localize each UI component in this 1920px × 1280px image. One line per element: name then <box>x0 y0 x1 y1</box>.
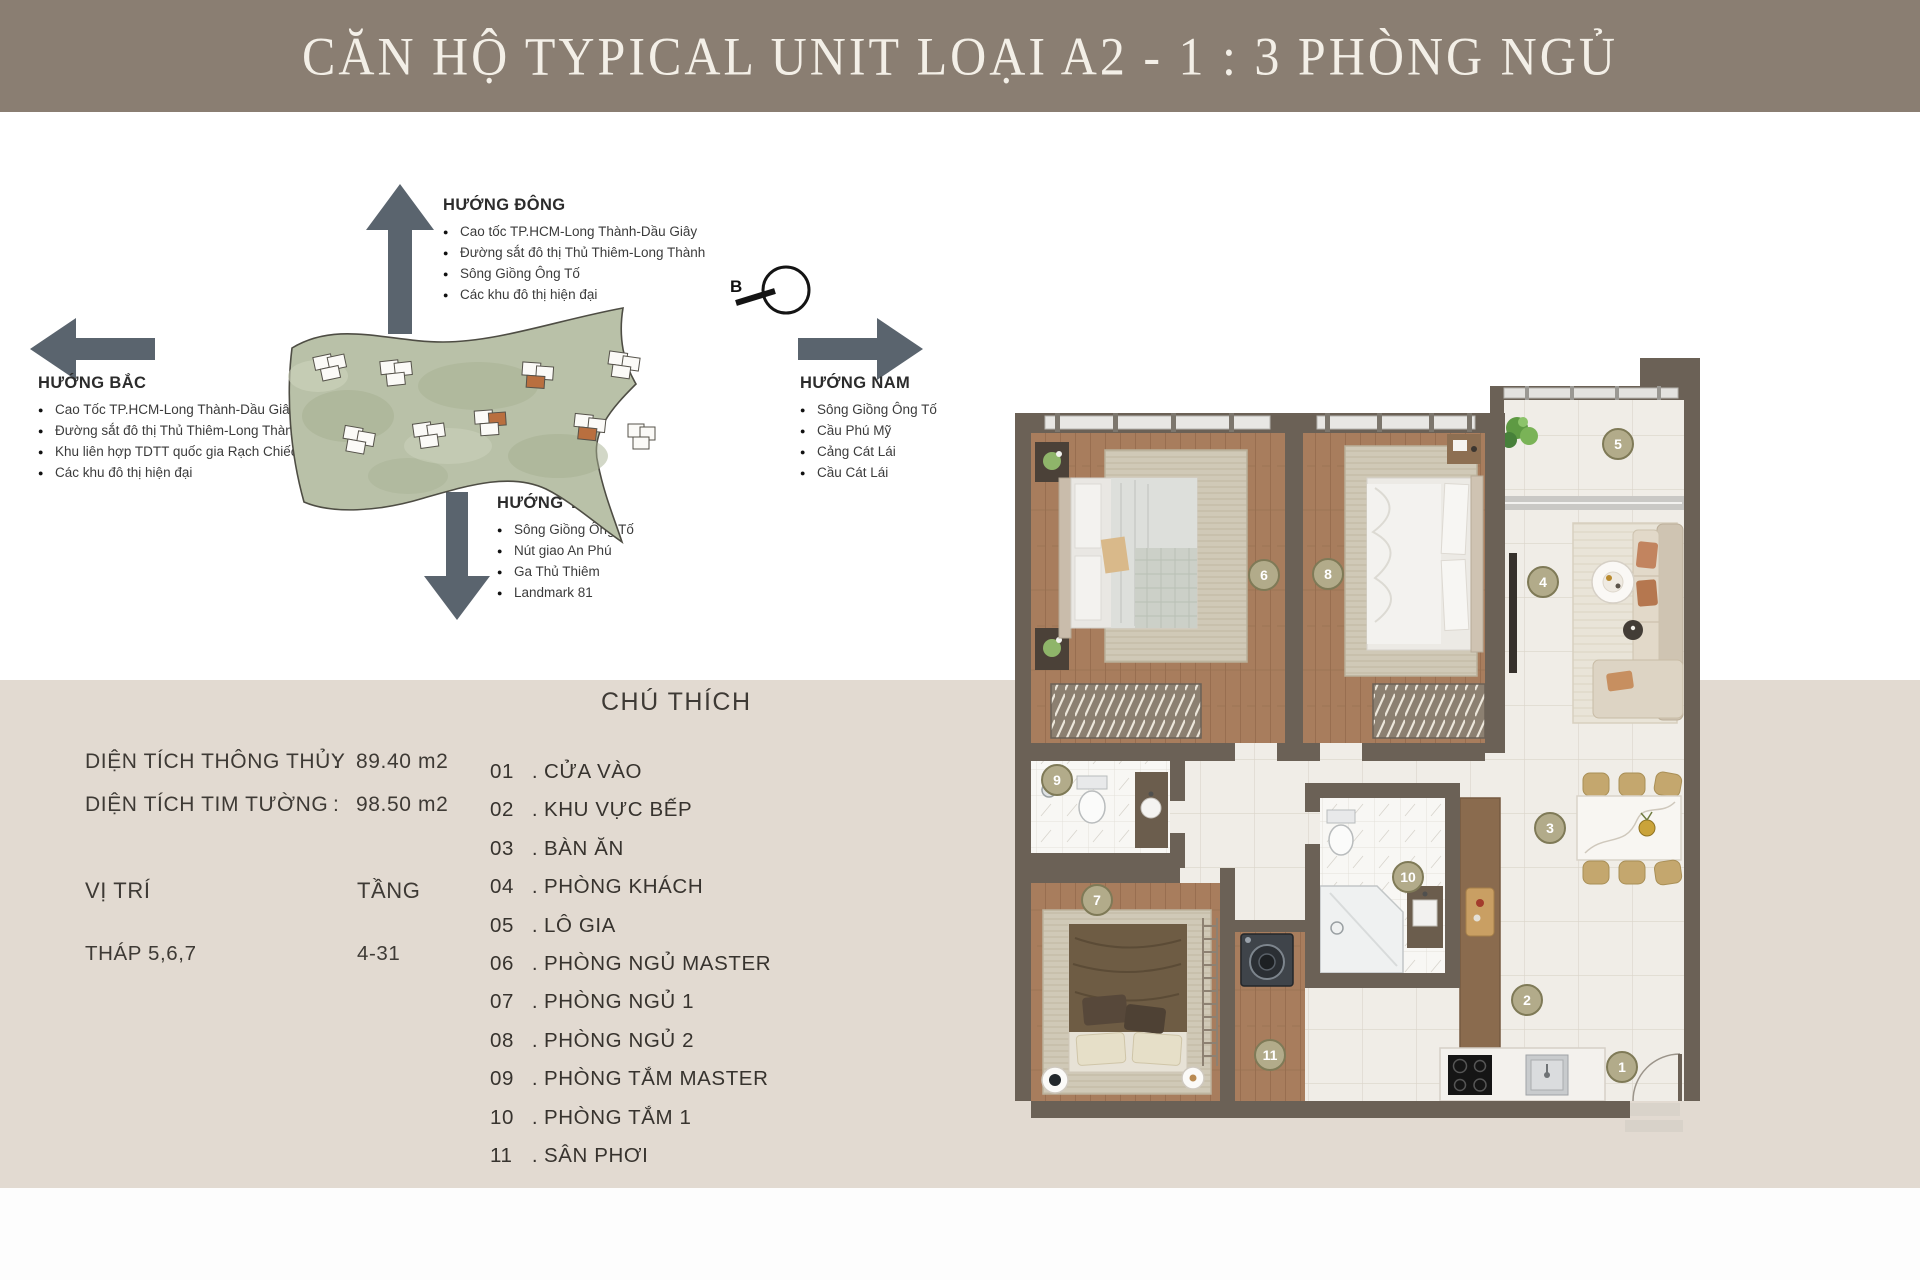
bullet-icon: ● <box>800 447 805 457</box>
position-label: VỊ TRÍ <box>85 878 151 904</box>
direction-block-south: HƯỚNG NAM ●Sông Giồng Ông Tố ●Cầu Phú Mỹ… <box>800 374 937 486</box>
room-badge-3: 3 <box>1535 813 1565 843</box>
compass-north-label: B <box>730 277 742 296</box>
floor-label: TẦNG <box>357 878 421 904</box>
colon: : <box>333 750 339 774</box>
legend-item: 02.KHU VỰC BẾP <box>490 798 771 836</box>
room-badge-1: 1 <box>1607 1052 1637 1082</box>
legend-item: 10.PHÒNG TẮM 1 <box>490 1106 771 1144</box>
legend-item: 03.BÀN ĂN <box>490 837 771 875</box>
legend-item: 11.SÂN PHƠI <box>490 1144 771 1182</box>
arrow-north-icon <box>30 318 155 380</box>
tower-footprint <box>628 424 655 449</box>
north-indicator-icon: B <box>726 250 826 332</box>
room-badge-8: 8 <box>1313 559 1343 589</box>
legend-item: 01.CỬA VÀO <box>490 760 771 798</box>
washing-machine-icon <box>1241 934 1293 986</box>
room-badge-4: 4 <box>1528 567 1558 597</box>
room-badge-9: 9 <box>1042 765 1072 795</box>
list-item: ●Sông Giồng Ông Tố <box>800 402 937 417</box>
bullet-icon: ● <box>497 588 502 598</box>
bedroom1-bed <box>1042 910 1217 1094</box>
bullet-icon: ● <box>38 447 43 457</box>
room-badge-2: 2 <box>1512 985 1542 1015</box>
dining-set <box>1577 771 1683 886</box>
position-value: THÁP 5,6,7 <box>85 942 197 966</box>
area-label-clear: DIỆN TÍCH THÔNG THỦY <box>85 750 346 774</box>
bullet-icon: ● <box>800 405 805 415</box>
room-badge-6: 6 <box>1249 560 1279 590</box>
floor-plan: 1 2 3 4 5 6 7 8 9 10 11 <box>985 328 1730 1143</box>
list-item: ●Cảng Cát Lái <box>800 444 937 459</box>
room-badge-7: 7 <box>1082 885 1112 915</box>
floor-value: 4-31 <box>357 942 400 966</box>
toilet-icon <box>1327 810 1355 823</box>
room-badge-10: 10 <box>1393 862 1423 892</box>
legend-title: CHÚ THÍCH <box>601 688 752 717</box>
svg-text:8: 8 <box>1324 566 1332 582</box>
master-bed <box>1035 442 1247 670</box>
legend-item: 09.PHÒNG TẮM MASTER <box>490 1067 771 1105</box>
direction-south-list: ●Sông Giồng Ông Tố ●Cầu Phú Mỹ ●Cảng Cát… <box>800 402 937 480</box>
site-map <box>228 246 660 576</box>
svg-text:1: 1 <box>1618 1059 1626 1075</box>
bullet-icon: ● <box>38 426 43 436</box>
legend-item: 04.PHÒNG KHÁCH <box>490 875 771 913</box>
direction-south-title: HƯỚNG NAM <box>800 374 937 393</box>
svg-text:10: 10 <box>1400 869 1416 885</box>
svg-text:7: 7 <box>1093 892 1101 908</box>
header-banner: CĂN HỘ TYPICAL UNIT LOẠI A2 - 1 : 3 PHÒN… <box>0 0 1920 112</box>
bedroom2-wardrobe <box>1373 684 1485 738</box>
svg-text:4: 4 <box>1539 574 1547 590</box>
living-sofa-set <box>1573 523 1683 723</box>
legend-list: 01.CỬA VÀO 02.KHU VỰC BẾP 03.BÀN ĂN 04.P… <box>490 760 771 1182</box>
bullet-icon: ● <box>800 468 805 478</box>
bottom-background <box>0 1188 1920 1280</box>
legend-item: 06.PHÒNG NGỦ MASTER <box>490 952 771 990</box>
list-item: ●Cầu Cát Lái <box>800 465 937 480</box>
bedroom2-bed <box>1345 434 1483 676</box>
legend-item: 05.LÔ GIA <box>490 914 771 952</box>
master-wardrobe <box>1051 684 1201 738</box>
bullet-icon: ● <box>443 227 448 237</box>
list-item: ●Cầu Phú Mỹ <box>800 423 937 438</box>
legend-item: 07.PHÒNG NGỦ 1 <box>490 990 771 1028</box>
legend-item: 08.PHÒNG NGỦ 2 <box>490 1029 771 1067</box>
bullet-icon: ● <box>38 405 43 415</box>
direction-east-title: HƯỚNG ĐÔNG <box>443 196 705 215</box>
area-value-gross: 98.50 m2 <box>356 793 448 817</box>
loggia-floor <box>1504 400 1684 496</box>
brochure-page: CĂN HỘ TYPICAL UNIT LOẠI A2 - 1 : 3 PHÒN… <box>0 0 1920 1280</box>
area-label-gross: DIỆN TÍCH TIM TƯỜNG <box>85 793 328 817</box>
svg-text:5: 5 <box>1614 436 1622 452</box>
area-value-clear: 89.40 m2 <box>356 750 448 774</box>
room-badge-11: 11 <box>1255 1040 1285 1070</box>
bullet-icon: ● <box>38 468 43 478</box>
colon: : <box>333 793 339 817</box>
bullet-icon: ● <box>800 426 805 436</box>
list-item: ●Cao tốc TP.HCM-Long Thành-Dầu Giây <box>443 224 705 239</box>
svg-text:6: 6 <box>1260 567 1268 583</box>
svg-text:11: 11 <box>1263 1047 1278 1063</box>
svg-text:2: 2 <box>1523 992 1531 1008</box>
tv-console <box>1509 553 1517 673</box>
toilet-icon <box>1077 776 1107 789</box>
svg-text:3: 3 <box>1546 820 1554 836</box>
room-badge-5: 5 <box>1603 429 1633 459</box>
page-title: CĂN HỘ TYPICAL UNIT LOẠI A2 - 1 : 3 PHÒN… <box>302 25 1618 88</box>
list-item: ●Landmark 81 <box>497 585 634 600</box>
svg-text:9: 9 <box>1053 772 1061 788</box>
